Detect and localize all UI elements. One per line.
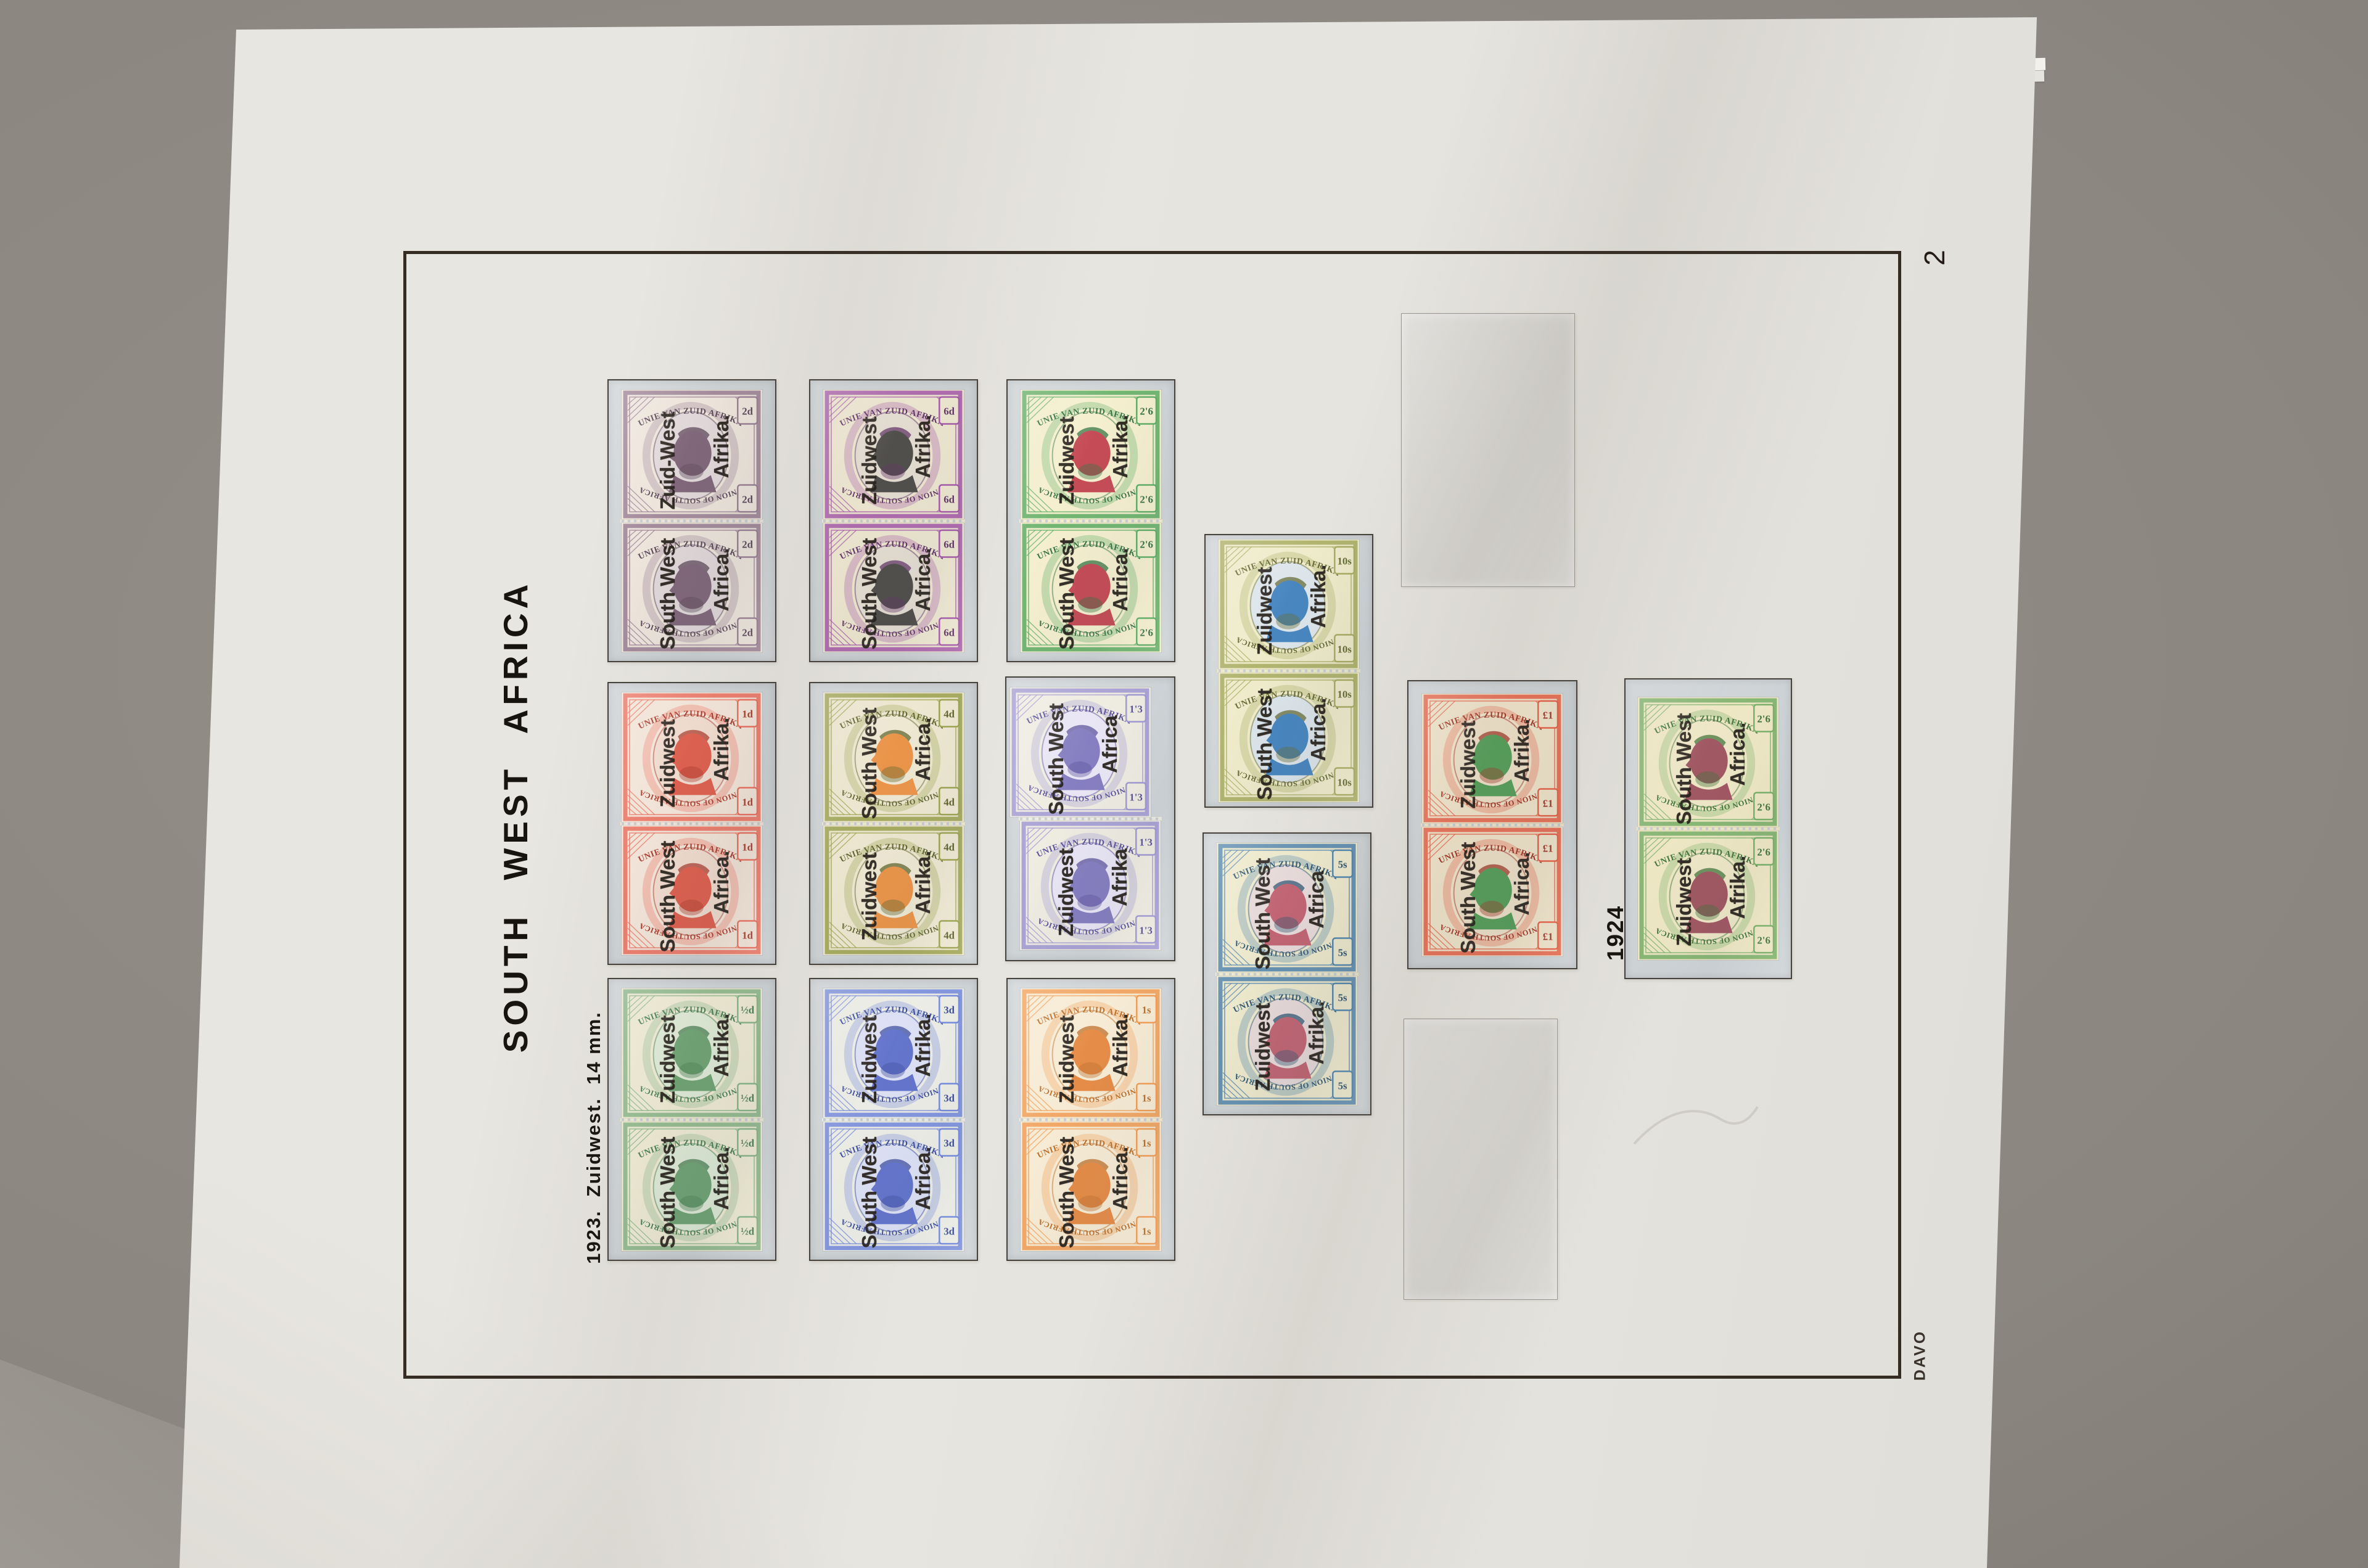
- svg-text:1'3: 1'3: [1139, 924, 1153, 936]
- page-title: SOUTH WEST AFRICA: [496, 580, 535, 1053]
- overprint-line1: South West: [656, 841, 680, 953]
- stamp-pair-mount-1s3d: UNIE VAN ZUID AFRIKA UNION OF SOUTH AFRI…: [1005, 676, 1175, 961]
- faint-pencil-mark: [1628, 1085, 1764, 1159]
- empty-mount-empty-top: [1401, 313, 1575, 587]
- overprint-line2: Afrika.: [1109, 415, 1132, 478]
- svg-text:3d: 3d: [943, 1225, 955, 1237]
- svg-text:5s: 5s: [1338, 946, 1347, 958]
- stamp-3d-top: UNIE VAN ZUID AFRIKA UNION OF SOUTH AFRI…: [823, 988, 964, 1118]
- stamp-10s-bottom: UNIE VAN ZUID AFRIKA UNION OF SOUTH AFRI…: [1219, 673, 1359, 802]
- svg-text:1'3: 1'3: [1129, 791, 1143, 803]
- svg-text:5s: 5s: [1338, 991, 1347, 1003]
- overprint-line1: Zuidwest: [858, 852, 881, 940]
- stamp-pair-mount-5s: UNIE VAN ZUID AFRIKA UNION OF SOUTH AFRI…: [1202, 832, 1371, 1115]
- stamp-pair-mount-3d: UNIE VAN ZUID AFRIKA UNION OF SOUTH AFRI…: [809, 978, 978, 1261]
- stamp-L1-bottom: UNIE VAN ZUID AFRIKA UNION OF SOUTH AFRI…: [1422, 827, 1563, 956]
- svg-text:1s: 1s: [1142, 1225, 1151, 1237]
- stamp-4d-top: UNIE VAN ZUID AFRIKA UNION OF SOUTH AFRI…: [823, 692, 964, 822]
- stamp-design: UNIE VAN ZUID AFRIKA UNION OF SOUTH AFRI…: [622, 988, 762, 1118]
- svg-text:1d: 1d: [742, 708, 753, 720]
- overprint-line1: Zuidwest: [858, 416, 881, 504]
- svg-text:2'6: 2'6: [1757, 934, 1770, 946]
- stamp-2s6d-1924-bottom: UNIE VAN ZUID AFRIKA UNION OF SOUTH AFRI…: [1638, 831, 1778, 960]
- svg-text:4d: 4d: [943, 708, 955, 720]
- overprint-line1: South West: [858, 708, 881, 819]
- stamp-2s6d-1923-top: UNIE VAN ZUID AFRIKA UNION OF SOUTH AFRI…: [1021, 390, 1161, 519]
- stamp-design: UNIE VAN ZUID AFRIKA UNION OF SOUTH AFRI…: [1219, 540, 1359, 669]
- stamp-design: UNIE VAN ZUID AFRIKA UNION OF SOUTH AFRI…: [1021, 390, 1161, 519]
- stamp-L1-top: UNIE VAN ZUID AFRIKA UNION OF SOUTH AFRI…: [1422, 694, 1563, 823]
- stamp-design: UNIE VAN ZUID AFRIKA UNION OF SOUTH AFRI…: [823, 523, 964, 652]
- stamp-design: UNIE VAN ZUID AFRIKA UNION OF SOUTH AFRI…: [823, 1122, 964, 1251]
- svg-text:½d: ½d: [741, 1137, 755, 1149]
- svg-text:£1: £1: [1543, 797, 1553, 809]
- svg-text:2d: 2d: [742, 626, 753, 638]
- stamp-pair-mount-1s: UNIE VAN ZUID AFRIKA UNION OF SOUTH AFRI…: [1006, 978, 1175, 1261]
- svg-text:2d: 2d: [742, 405, 753, 417]
- svg-text:½d: ½d: [741, 1004, 755, 1016]
- overprint-line1: Zuid-West: [656, 412, 680, 510]
- stamp-design: UNIE VAN ZUID AFRIKA UNION OF SOUTH AFRI…: [622, 523, 762, 652]
- stamp-design: UNIE VAN ZUID AFRIKA UNION OF SOUTH AFRI…: [622, 390, 762, 519]
- stamp-design: UNIE VAN ZUID AFRIKA UNION OF SOUTH AFRI…: [1021, 988, 1161, 1118]
- svg-text:1d: 1d: [742, 929, 753, 941]
- svg-text:1'3: 1'3: [1139, 837, 1153, 848]
- overprint-line1: South West: [656, 1137, 680, 1249]
- stamp-2d-top: UNIE VAN ZUID AFRIKA UNION OF SOUTH AFRI…: [622, 390, 762, 519]
- stamp-1s-top: UNIE VAN ZUID AFRIKA UNION OF SOUTH AFRI…: [1021, 988, 1161, 1118]
- overprint-line1: Zuidwest: [1251, 1003, 1275, 1091]
- stamp-1s-bottom: UNIE VAN ZUID AFRIKA UNION OF SOUTH AFRI…: [1021, 1122, 1161, 1251]
- overprint-line1: South West: [858, 538, 881, 650]
- overprint-line1: Zuidwest: [858, 1015, 881, 1103]
- stamp-pair-mount-halfd: UNIE VAN ZUID AFRIKA UNION OF SOUTH AFRI…: [607, 978, 776, 1261]
- svg-text:1d: 1d: [742, 841, 753, 853]
- overprint-line2: Afrika.: [1109, 1014, 1132, 1077]
- stamp-design: UNIE VAN ZUID AFRIKA UNION OF SOUTH AFRI…: [823, 826, 964, 955]
- overprint-line1: Zuidwest: [1054, 848, 1078, 936]
- svg-text:6d: 6d: [943, 493, 955, 505]
- stamp-design: UNIE VAN ZUID AFRIKA UNION OF SOUTH AFRI…: [1422, 827, 1563, 956]
- overprint-line2: Afrika.: [911, 415, 935, 478]
- overprint-line1: South West: [858, 1137, 881, 1249]
- svg-text:½d: ½d: [741, 1225, 755, 1237]
- overprint-line2: Afrika.: [1305, 1001, 1328, 1065]
- stamp-3d-bottom: UNIE VAN ZUID AFRIKA UNION OF SOUTH AFRI…: [823, 1122, 964, 1251]
- svg-text:5s: 5s: [1338, 858, 1347, 870]
- overprint-line2: Africa.: [1726, 723, 1749, 786]
- svg-text:2d: 2d: [742, 538, 753, 550]
- overprint-line1: Zuidwest: [1055, 416, 1079, 504]
- svg-text:10s: 10s: [1337, 776, 1352, 788]
- overprint-line1: South West: [1251, 858, 1275, 970]
- stamp-pair-mount-6d: UNIE VAN ZUID AFRIKA UNION OF SOUTH AFRI…: [809, 379, 978, 662]
- stamp-design: UNIE VAN ZUID AFRIKA UNION OF SOUTH AFRI…: [1217, 976, 1357, 1106]
- svg-text:2'6: 2'6: [1757, 847, 1770, 858]
- overprint-line1: South West: [1055, 538, 1079, 650]
- overprint-line2: Africa.: [1109, 1147, 1132, 1210]
- svg-text:2'6: 2'6: [1140, 493, 1153, 505]
- overprint-line2: Afrika: [1108, 849, 1132, 907]
- stamp-design: UNIE VAN ZUID AFRIKA UNION OF SOUTH AFRI…: [622, 1122, 762, 1251]
- overprint-line2: Afrika.: [1510, 719, 1534, 782]
- svg-text:10s: 10s: [1337, 643, 1352, 655]
- svg-text:6d: 6d: [943, 538, 955, 550]
- overprint-line1: Zuidwest: [1457, 720, 1480, 808]
- overprint-line2: Africa.: [911, 718, 935, 781]
- stamp-design: UNIE VAN ZUID AFRIKA UNION OF SOUTH AFRI…: [1021, 523, 1161, 652]
- stamp-6d-bottom: UNIE VAN ZUID AFRIKA UNION OF SOUTH AFRI…: [823, 523, 964, 652]
- svg-text:2'6: 2'6: [1757, 713, 1770, 725]
- overprint-line2: Africa.: [1307, 698, 1330, 761]
- svg-text:4d: 4d: [943, 841, 955, 853]
- stamp-design: UNIE VAN ZUID AFRIKA UNION OF SOUTH AFRI…: [1638, 831, 1778, 960]
- stamp-1s3d-top: UNIE VAN ZUID AFRIKA UNION OF SOUTH AFRI…: [1010, 688, 1151, 817]
- overprint-line2: Africa.: [1109, 548, 1132, 612]
- svg-text:1'3: 1'3: [1129, 704, 1143, 715]
- stamp-5s-top: UNIE VAN ZUID AFRIKA UNION OF SOUTH AFRI…: [1217, 843, 1357, 972]
- svg-text:10s: 10s: [1337, 556, 1352, 567]
- overprint-line1: Zuidwest: [1672, 858, 1696, 946]
- stamp-design: UNIE VAN ZUID AFRIKA UNION OF SOUTH AFRI…: [1219, 673, 1359, 802]
- svg-text:½d: ½d: [741, 1092, 755, 1104]
- svg-text:2'6: 2'6: [1140, 405, 1153, 417]
- overprint-line2: Afrika.: [710, 718, 733, 781]
- svg-text:2'6: 2'6: [1140, 538, 1153, 550]
- overprint-line1: South West: [1253, 688, 1276, 800]
- svg-text:4d: 4d: [943, 796, 955, 808]
- stamp-5s-bottom: UNIE VAN ZUID AFRIKA UNION OF SOUTH AFRI…: [1217, 976, 1357, 1106]
- stamp-design: UNIE VAN ZUID AFRIKA UNION OF SOUTH AFRI…: [1020, 821, 1161, 950]
- overprint-line2: Afrika.: [1307, 565, 1330, 628]
- overprint-line2: Afrika.: [1726, 856, 1749, 919]
- stamp-pair-mount-10s: UNIE VAN ZUID AFRIKA UNION OF SOUTH AFRI…: [1204, 534, 1373, 808]
- stamp-6d-top: UNIE VAN ZUID AFRIKA UNION OF SOUTH AFRI…: [823, 390, 964, 519]
- stamp-1d-bottom: UNIE VAN ZUID AFRIKA UNION OF SOUTH AFRI…: [622, 826, 762, 955]
- svg-text:6d: 6d: [943, 626, 955, 638]
- stamp-pair-mount-2s6d-1924: UNIE VAN ZUID AFRIKA UNION OF SOUTH AFRI…: [1624, 678, 1792, 979]
- caption-1923-zuidwest: 1923. Zuidwest. 14 mm.: [583, 1011, 605, 1264]
- stamp-design: UNIE VAN ZUID AFRIKA UNION OF SOUTH AFRI…: [1422, 694, 1563, 823]
- overprint-line2: Africa: [1305, 871, 1328, 929]
- stamp-pair-mount-2s6d-1923: UNIE VAN ZUID AFRIKA UNION OF SOUTH AFRI…: [1006, 379, 1175, 662]
- stamp-2s6d-1923-bottom: UNIE VAN ZUID AFRIKA UNION OF SOUTH AFRI…: [1021, 523, 1161, 652]
- stamp-design: UNIE VAN ZUID AFRIKA UNION OF SOUTH AFRI…: [823, 988, 964, 1118]
- svg-text:5s: 5s: [1338, 1080, 1347, 1091]
- overprint-line2: Afrika.: [911, 1014, 935, 1077]
- svg-text:1s: 1s: [1142, 1004, 1151, 1016]
- stamp-halfd-bottom: UNIE VAN ZUID AFRIKA UNION OF SOUTH AFRI…: [622, 1122, 762, 1251]
- overprint-line2: Africa.: [710, 851, 733, 914]
- svg-text:1s: 1s: [1142, 1137, 1151, 1149]
- stamp-1d-top: UNIE VAN ZUID AFRIKA UNION OF SOUTH AFRI…: [622, 692, 762, 822]
- stamp-design: UNIE VAN ZUID AFRIKA UNION OF SOUTH AFRI…: [1021, 1122, 1161, 1251]
- overprint-line1: South West: [1672, 713, 1696, 824]
- stamp-design: UNIE VAN ZUID AFRIKA UNION OF SOUTH AFRI…: [1010, 688, 1151, 817]
- stamp-design: UNIE VAN ZUID AFRIKA UNION OF SOUTH AFRI…: [622, 692, 762, 822]
- stamp-design: UNIE VAN ZUID AFRIKA UNION OF SOUTH AFRI…: [823, 390, 964, 519]
- page-number: 2: [1918, 250, 1951, 266]
- overprint-line1: Zuidwest: [656, 1015, 680, 1103]
- overprint-line2: Afrika.: [710, 415, 733, 478]
- stamp-1s3d-bottom: UNIE VAN ZUID AFRIKA UNION OF SOUTH AFRI…: [1020, 821, 1161, 950]
- overprint-line1: South West: [1457, 842, 1480, 954]
- svg-text:4d: 4d: [943, 929, 955, 941]
- stamp-4d-bottom: UNIE VAN ZUID AFRIKA UNION OF SOUTH AFRI…: [823, 826, 964, 955]
- stamp-design: UNIE VAN ZUID AFRIKA UNION OF SOUTH AFRI…: [622, 826, 762, 955]
- svg-text:2d: 2d: [742, 493, 753, 505]
- photo-of-stamp-album: SOUTH WEST AFRICA 1923. Zuidwest. 14 mm.…: [0, 0, 2368, 1568]
- svg-text:£1: £1: [1543, 842, 1553, 854]
- svg-text:£1: £1: [1543, 930, 1553, 942]
- overprint-line2: Afrika.: [710, 1014, 733, 1077]
- stamp-halfd-top: UNIE VAN ZUID AFRIKA UNION OF SOUTH AFRI…: [622, 988, 762, 1118]
- svg-text:3d: 3d: [943, 1137, 955, 1149]
- overprint-line2: Africa.: [911, 548, 935, 612]
- svg-text:£1: £1: [1543, 709, 1553, 721]
- stamp-10s-top: UNIE VAN ZUID AFRIKA UNION OF SOUTH AFRI…: [1219, 540, 1359, 669]
- stamp-design: UNIE VAN ZUID AFRIKA UNION OF SOUTH AFRI…: [823, 692, 964, 822]
- stamp-2s6d-1924-top: UNIE VAN ZUID AFRIKA UNION OF SOUTH AFRI…: [1638, 697, 1778, 827]
- stamp-pair-mount-2d: UNIE VAN ZUID AFRIKA UNION OF SOUTH AFRI…: [607, 379, 776, 662]
- svg-text:3d: 3d: [943, 1004, 955, 1016]
- overprint-line1: Zuidwest: [1253, 567, 1276, 655]
- overprint-line2: Africa.: [911, 1147, 935, 1210]
- overprint-line2: Africa: [1098, 716, 1122, 774]
- overprint-line2: Africa.: [710, 548, 733, 612]
- svg-text:10s: 10s: [1337, 689, 1352, 700]
- overprint-line1: South West: [656, 538, 680, 650]
- stamp-pair-mount-1d: UNIE VAN ZUID AFRIKA UNION OF SOUTH AFRI…: [607, 682, 776, 965]
- stamp-pair-mount-L1: UNIE VAN ZUID AFRIKA UNION OF SOUTH AFRI…: [1407, 680, 1577, 969]
- svg-text:6d: 6d: [943, 405, 955, 417]
- overprint-line2: Africa.: [710, 1147, 733, 1210]
- overprint-line1: Zuidwest: [656, 719, 680, 807]
- overprint-line1: South West: [1045, 703, 1068, 815]
- svg-text:1s: 1s: [1142, 1092, 1151, 1104]
- stamp-2d-bottom: UNIE VAN ZUID AFRIKA UNION OF SOUTH AFRI…: [622, 523, 762, 652]
- stamp-pair-mount-4d: UNIE VAN ZUID AFRIKA UNION OF SOUTH AFRI…: [809, 682, 978, 965]
- overprint-line2: Africa.: [1510, 852, 1534, 916]
- svg-text:2'6: 2'6: [1140, 626, 1153, 638]
- publisher-imprint: DAVO: [1912, 1330, 1930, 1381]
- overprint-line1: South West: [1055, 1137, 1079, 1249]
- stamp-design: UNIE VAN ZUID AFRIKA UNION OF SOUTH AFRI…: [1217, 843, 1357, 972]
- overprint-line2: Afrika.: [911, 851, 935, 914]
- empty-mount-empty-bottom: [1404, 1019, 1558, 1300]
- svg-text:3d: 3d: [943, 1092, 955, 1104]
- overprint-line1: Zuidwest: [1055, 1015, 1079, 1103]
- stamp-design: UNIE VAN ZUID AFRIKA UNION OF SOUTH AFRI…: [1638, 697, 1778, 827]
- svg-text:2'6: 2'6: [1757, 801, 1770, 813]
- svg-text:1d: 1d: [742, 796, 753, 808]
- album-page: SOUTH WEST AFRICA 1923. Zuidwest. 14 mm.…: [0, 0, 2368, 1568]
